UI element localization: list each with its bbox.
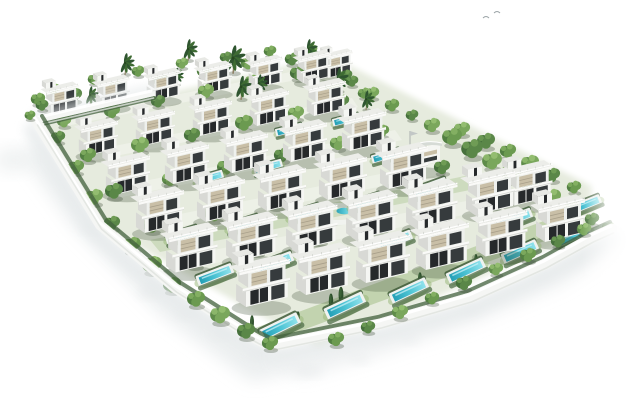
tree-foliage [507, 144, 513, 150]
tree [442, 128, 462, 149]
tree-foliage [552, 236, 557, 241]
tree-foliage [386, 100, 391, 105]
tree-foliage [239, 121, 249, 131]
palm-crown [258, 82, 260, 84]
palm-crown [124, 62, 126, 64]
tree-foliage [568, 182, 573, 187]
tree-foliage [111, 216, 117, 222]
tree-foliage [108, 109, 117, 118]
tree-foliage [87, 148, 93, 154]
tree-foliage [132, 67, 136, 71]
tree-foliage [490, 264, 495, 269]
tree-foliage [393, 307, 398, 312]
tree-foliage [391, 99, 396, 104]
tree-foliage [84, 153, 93, 162]
tree-foliage [269, 46, 273, 50]
tree-foliage [478, 135, 484, 141]
tree-foliage [32, 94, 37, 99]
tree-foliage [466, 147, 478, 159]
palm-crown [240, 85, 243, 88]
tree-foliage [154, 100, 162, 108]
tree-foliage [291, 68, 296, 73]
tree-foliage [225, 52, 229, 56]
tree-foliage [406, 111, 410, 115]
tree-foliage [426, 293, 431, 298]
tree-foliage [460, 281, 469, 290]
tree-foliage [463, 276, 469, 282]
tree [187, 291, 205, 310]
tree-foliage [218, 161, 224, 167]
tree-foliage [578, 224, 583, 229]
palm-shadow [237, 98, 248, 102]
tree-foliage [438, 165, 447, 174]
palm-crown [365, 98, 367, 100]
tree-foliage [428, 297, 436, 305]
tree-foliage [25, 112, 29, 116]
tree-foliage [139, 137, 145, 143]
tree-foliage [358, 89, 362, 93]
tree-foliage [185, 130, 190, 135]
tree [361, 321, 375, 336]
tree-foliage [411, 110, 415, 114]
tree [489, 263, 503, 278]
tree-foliage [195, 291, 201, 297]
tree-foliage [179, 62, 186, 69]
tree-foliage [457, 278, 462, 283]
tree-foliage [109, 189, 119, 199]
tree-foliage [388, 104, 396, 112]
tree-foliage [483, 154, 490, 161]
tree-foliage [245, 323, 251, 329]
tree [36, 100, 49, 113]
ground-shadow [350, 356, 370, 364]
tree-foliage [29, 110, 33, 114]
tree [328, 332, 344, 349]
tree-foliage [135, 143, 145, 153]
tree [567, 181, 581, 196]
tree-foliage [364, 326, 372, 334]
tree-foliage [371, 87, 376, 92]
tree-foliage [289, 108, 294, 113]
tree-foliage [337, 136, 343, 142]
tree-foliage [451, 128, 458, 135]
tree-foliage [573, 181, 578, 186]
tree-foliage [527, 248, 533, 254]
tree-foliage [524, 253, 533, 262]
tree-foliage [243, 115, 249, 121]
palm-crown [89, 94, 91, 96]
tree-foliage [529, 155, 535, 161]
tree-foliage [332, 337, 341, 346]
tree [456, 276, 472, 293]
tree-foliage [335, 332, 341, 338]
ground-shadow [400, 336, 420, 344]
tree-foliage [295, 106, 301, 112]
tree-foliage [93, 189, 99, 195]
palm-crown [231, 57, 234, 60]
tree-foliage [176, 59, 180, 63]
tree-foliage [487, 159, 498, 170]
cypress-foliage [329, 295, 331, 304]
tree-foliage [286, 54, 291, 59]
tree-foliage [37, 93, 42, 98]
tree-foliage [191, 297, 201, 307]
tree-foliage [205, 84, 211, 90]
tree-foliage [431, 292, 436, 297]
tree-foliage [485, 133, 491, 139]
tree-foliage [471, 139, 479, 147]
tree-foliage [557, 235, 562, 240]
buildings-and-vegetation-layer [31, 39, 615, 348]
villa-compound-render [0, 0, 630, 403]
edge-fade [582, 0, 630, 403]
tree-foliage [236, 117, 242, 123]
tree [105, 183, 123, 202]
tree-foliage [215, 313, 226, 324]
tree-foliage [501, 146, 506, 151]
tree [520, 248, 536, 265]
cypress-foliage [339, 288, 342, 298]
tree-foliage [435, 162, 440, 167]
tree-foliage [425, 120, 430, 125]
tree-foliage [492, 268, 500, 276]
tree-foliage [551, 168, 557, 174]
tree-foliage [57, 131, 62, 136]
tree-foliage [399, 305, 405, 311]
tree-foliage [441, 160, 447, 166]
tree-foliage [431, 118, 437, 124]
tree-foliage [220, 53, 224, 57]
tree-foliage [157, 95, 162, 100]
tree-foliage [188, 293, 194, 299]
tree-foliage [288, 58, 296, 66]
tree-foliage [88, 75, 92, 79]
tree-foliage [462, 142, 469, 149]
tree-foliage [570, 186, 578, 194]
tree-foliage [349, 80, 356, 87]
tree-foliage [428, 123, 437, 132]
tree-foliage [27, 114, 33, 120]
tree-foliage [409, 114, 416, 121]
tree-foliage [495, 263, 500, 268]
tree-foliage [39, 104, 46, 111]
tree-foliage [521, 250, 526, 255]
tree-foliage [219, 306, 226, 313]
tree [210, 306, 230, 327]
tree-foliage [241, 329, 251, 339]
tree-foliage [199, 86, 204, 91]
tree-foliage [75, 160, 81, 166]
tree-foliage [132, 139, 138, 145]
tree-foliage [263, 338, 268, 343]
tree-foliage [41, 100, 45, 104]
tree-foliage [447, 135, 458, 146]
scene-canvas [0, 0, 630, 403]
tree-foliage [345, 70, 349, 74]
tree [551, 235, 565, 250]
tree-foliage [36, 101, 40, 105]
tree [461, 139, 483, 162]
tree-foliage [396, 310, 405, 319]
tree-foliage [367, 321, 372, 326]
tree-foliage [191, 128, 197, 134]
tree-foliage [554, 240, 562, 248]
tree-foliage [266, 341, 275, 350]
bird [483, 17, 489, 19]
tree-foliage [269, 336, 275, 342]
tree [237, 323, 255, 342]
ground-shadow [296, 367, 324, 377]
tree-foliage [238, 325, 244, 331]
bird [494, 12, 500, 14]
tree-foliage [211, 308, 218, 315]
tree-foliage [181, 58, 185, 62]
tree-foliage [362, 322, 367, 327]
tree-foliage [491, 152, 498, 159]
tree [25, 110, 36, 122]
tree-foliage [275, 150, 280, 155]
tree [385, 99, 399, 114]
tree-foliage [334, 141, 343, 150]
tree-foliage [135, 70, 142, 77]
tree [262, 336, 278, 353]
tree-foliage [188, 133, 197, 142]
tree-foliage [113, 183, 119, 189]
tree [424, 118, 440, 135]
tree [434, 160, 450, 177]
tree-foliage [351, 76, 355, 80]
tree-foliage [331, 138, 336, 143]
tree-foliage [522, 157, 528, 163]
cypress-foliage [250, 316, 252, 324]
tree-foliage [329, 334, 334, 339]
tree-foliage [81, 150, 86, 155]
tree-foliage [137, 66, 141, 70]
palm-crown [187, 48, 189, 50]
tree-foliage [461, 122, 467, 128]
tree [425, 292, 439, 307]
tree-foliage [443, 130, 450, 137]
tree [392, 305, 408, 322]
palm-shadow [228, 71, 241, 76]
tree-foliage [106, 185, 112, 191]
tree [406, 110, 419, 123]
tree-foliage [264, 47, 268, 51]
tree [132, 66, 145, 79]
